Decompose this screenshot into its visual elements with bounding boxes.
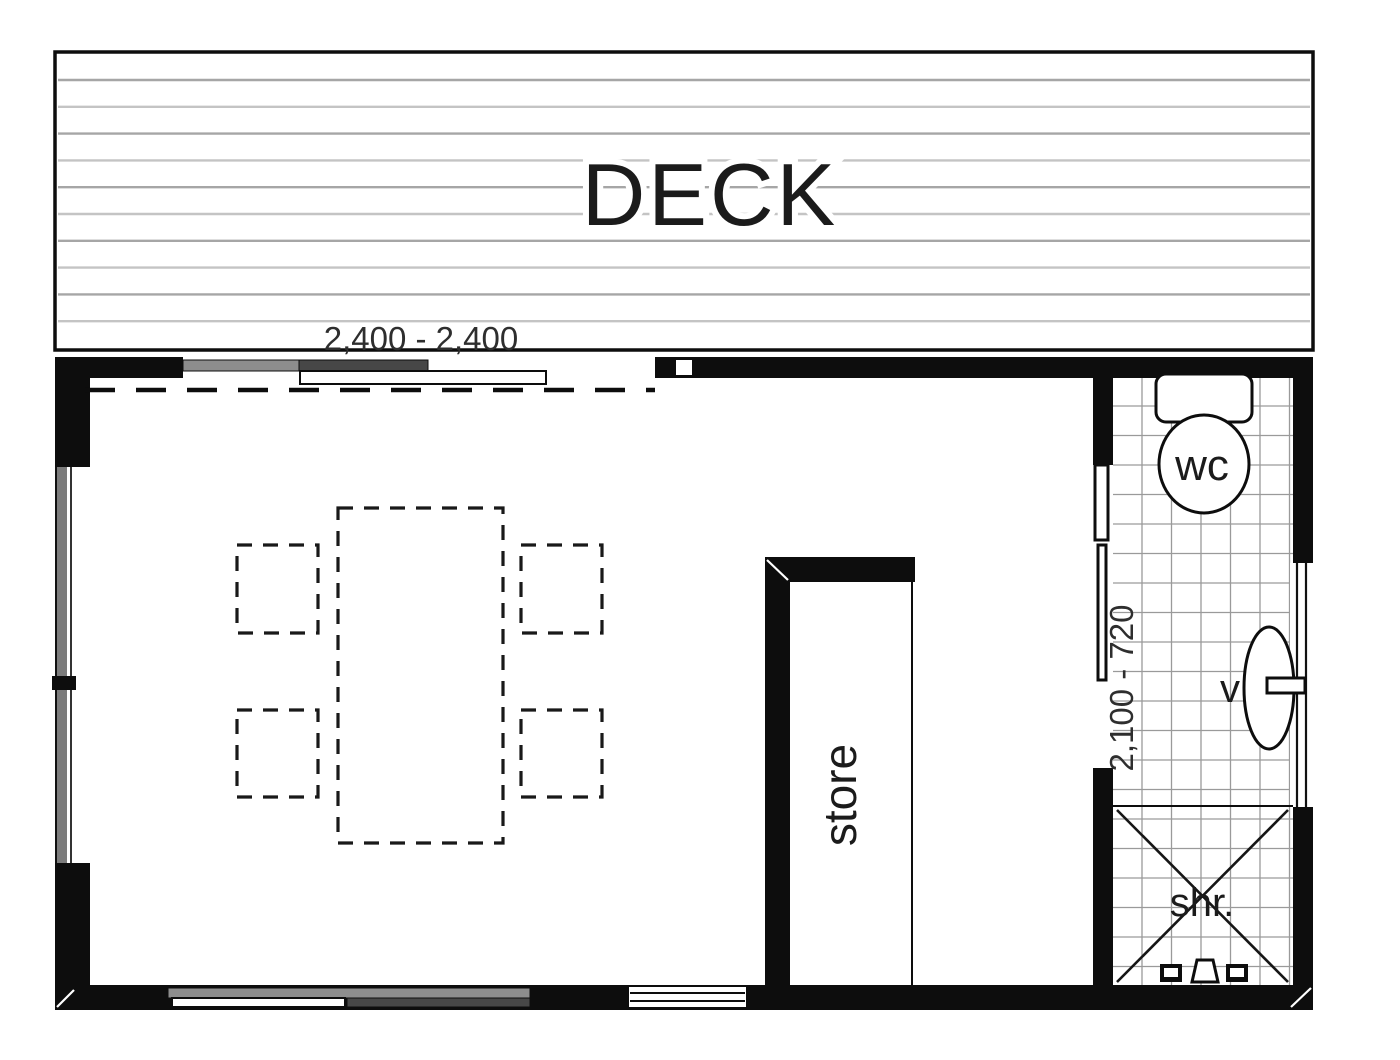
door-dimension: 2,400 - 2,400 — [324, 320, 519, 357]
bathroom-left-wall-upper — [1093, 357, 1113, 465]
shower-tap-inner — [1164, 968, 1178, 977]
sliding-window-sash — [347, 998, 530, 1007]
dining-table — [338, 508, 503, 843]
store-label: store — [814, 744, 866, 846]
chair — [237, 710, 318, 797]
sliding-window-sash — [168, 988, 530, 998]
deck-area: DECK — [55, 52, 1313, 350]
louvre-window — [628, 986, 747, 1008]
wc-label: wc — [1174, 441, 1229, 490]
shower-label: shr. — [1170, 881, 1234, 925]
deck-label: DECK — [582, 145, 839, 244]
floor-plan: DECK — [0, 0, 1400, 1060]
store-left-wall — [765, 557, 790, 990]
floor-plan-svg: DECK — [0, 0, 1400, 1060]
sliding-door-sash — [300, 371, 546, 384]
dining-set — [237, 508, 602, 843]
chair — [521, 710, 602, 797]
sliding-door-sash — [183, 360, 299, 371]
left-wall-upper — [55, 357, 90, 467]
bathroom-door-leaf — [1095, 465, 1108, 540]
vanity-spout — [1267, 678, 1305, 693]
shower: shr. — [1113, 806, 1293, 982]
left-window — [52, 467, 90, 863]
chair — [521, 545, 602, 633]
bathroom-left-wall-lower — [1093, 768, 1113, 985]
shower-head — [1192, 960, 1218, 982]
sliding-window-sash — [172, 998, 345, 1007]
chair — [237, 545, 318, 633]
vanity-label: v — [1220, 667, 1240, 711]
dimensions: 2,400 - 2,400 2,100 - 720 — [324, 320, 1140, 771]
store-room: store — [765, 557, 915, 990]
bathroom-dimension: 2,100 - 720 — [1103, 605, 1140, 772]
sliding-door-sash — [299, 360, 428, 371]
right-wall-upper — [1293, 357, 1313, 563]
shower-tap-inner — [1230, 968, 1244, 977]
window-mullion — [52, 676, 76, 690]
toilet: wc — [1156, 374, 1252, 513]
wall-post — [676, 360, 692, 375]
right-wall-lower — [1293, 807, 1313, 985]
bottom-windows — [168, 986, 747, 1008]
